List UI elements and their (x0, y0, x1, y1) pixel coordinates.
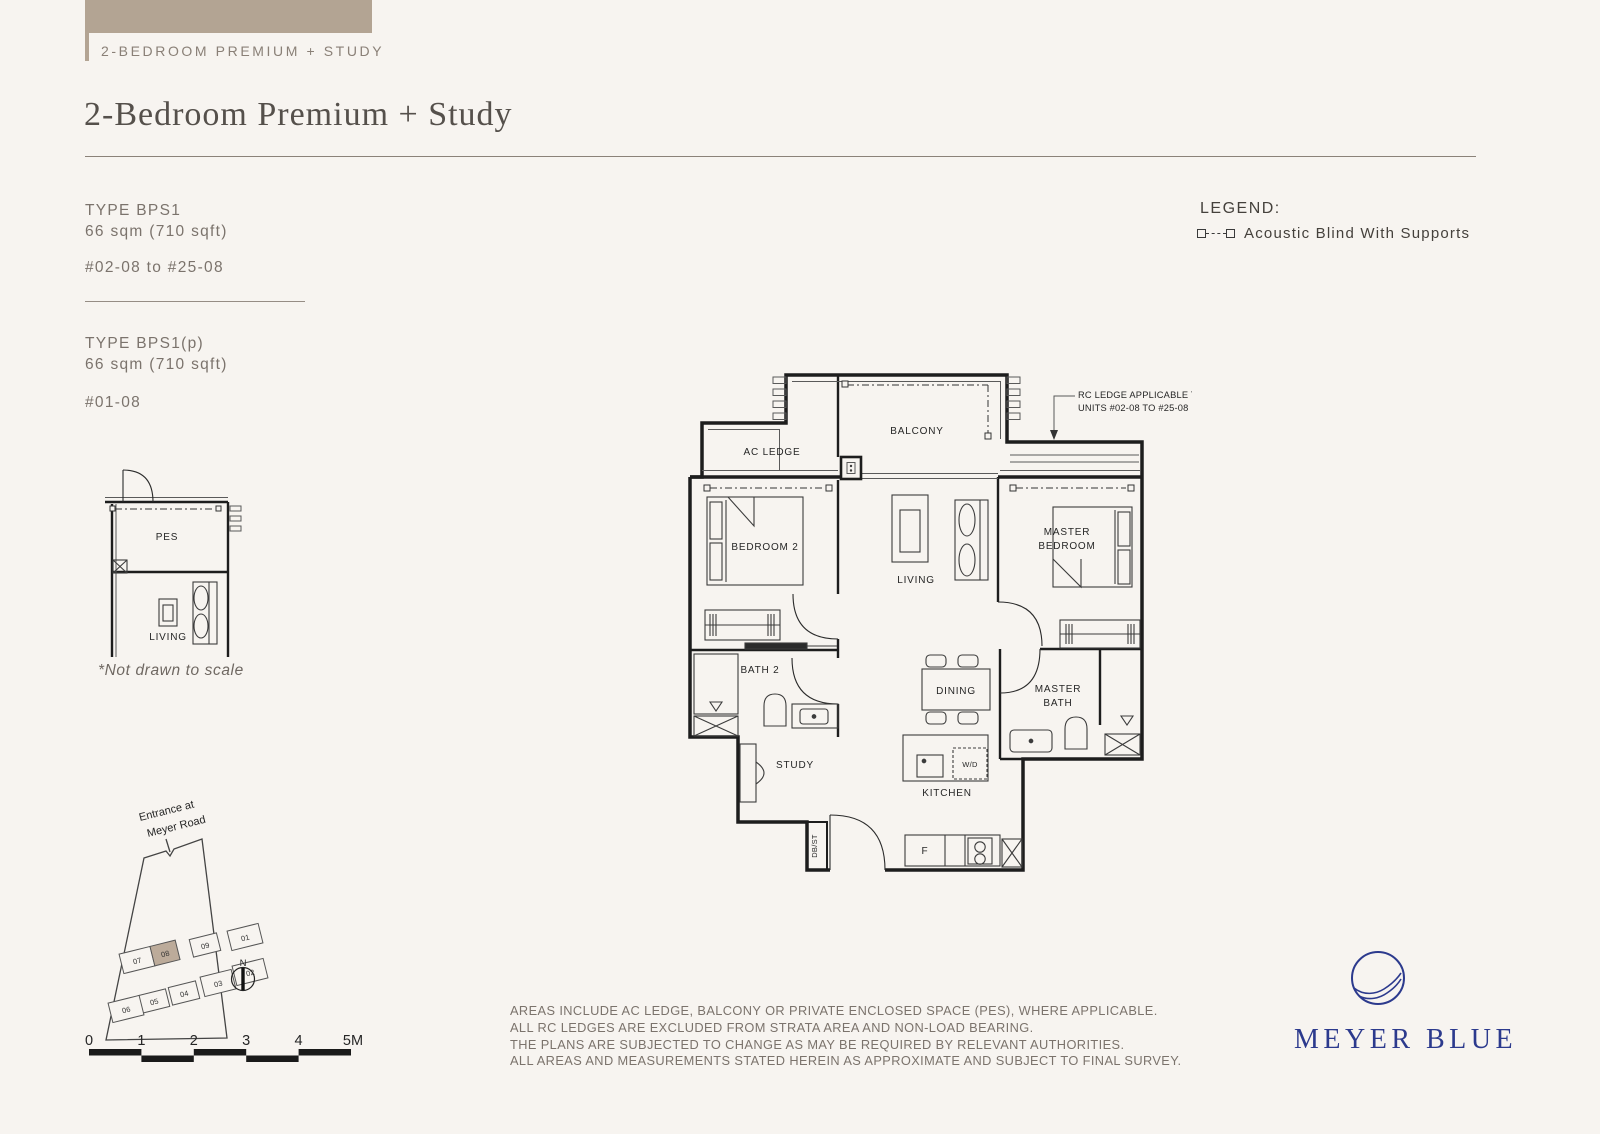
header-tab (85, 0, 372, 33)
accent-bar (85, 33, 89, 61)
doors (792, 594, 1042, 870)
master-bedroom-label-2: BEDROOM (1038, 541, 1095, 552)
scale-bar: 0 1 2 3 4 5M (84, 1032, 384, 1066)
kitchen-label: KITCHEN (922, 788, 972, 799)
disclaimer-line-4: ALL AREAS AND MEASUREMENTS STATED HEREIN… (510, 1053, 1182, 1070)
unit-type-1-name: TYPE BPS1 (85, 200, 228, 221)
scale-1: 1 (137, 1033, 145, 1049)
compass-north-label: N (240, 958, 247, 969)
wd-label: W/D (962, 760, 978, 769)
inset-ledge-marks (230, 506, 241, 531)
disclaimer-line-3: THE PLANS ARE SUBJECTED TO CHANGE AS MAY… (510, 1037, 1182, 1054)
structural-column (841, 457, 861, 479)
legend-item: Acoustic Blind With Supports (1197, 225, 1470, 242)
bedroom2-furniture (705, 497, 837, 649)
title-divider (85, 156, 1476, 157)
rc-ledge-annotation-line1: RC LEDGE APPLICABLE TO (1078, 390, 1192, 400)
site-map: Entrance at Meyer Road 01 02 03 04 05 06… (80, 795, 370, 1050)
disclaimer: AREAS INCLUDE AC LEDGE, BALCONY OR PRIVA… (510, 1003, 1182, 1070)
rc-ledge-annotation-line2: UNITS #02-08 TO #25-08 (1078, 403, 1189, 413)
inset-living-label: LIVING (149, 632, 187, 643)
unit-type-1-units: #02-08 to #25-08 (85, 257, 224, 278)
not-to-scale-note: *Not drawn to scale (98, 662, 244, 680)
living-furniture (892, 495, 988, 580)
unit-type-2: TYPE BPS1(p) 66 sqm (710 sqft) (85, 333, 228, 375)
master-bedroom-label-1: MASTER (1044, 527, 1090, 538)
master-bath-label-1: MASTER (1035, 684, 1081, 695)
scale-5m: 5M (343, 1033, 363, 1049)
study-furniture (740, 744, 764, 802)
unit-type-2-area: 66 sqm (710 sqft) (85, 354, 228, 375)
inset-pes-label: PES (156, 532, 178, 543)
dbst-label: DB/ST (810, 834, 819, 858)
floor-plan: AC LEDGE BALCONY BEDROOM 2 LIVING MASTER… (680, 352, 1192, 878)
meyer-blue-logo-icon (1346, 948, 1410, 1012)
ac-ledge-label: AC LEDGE (744, 447, 801, 458)
acoustic-blind-icon (1197, 229, 1235, 239)
ledge-marks (773, 377, 1020, 420)
living-label: LIVING (897, 575, 935, 586)
scale-3: 3 (242, 1033, 250, 1049)
meyer-blue-logo-text: MEYER BLUE (1294, 1024, 1517, 1056)
dining-label: DINING (936, 686, 976, 697)
master-bath-label-2: BATH (1043, 698, 1072, 709)
scale-0: 0 (85, 1033, 93, 1049)
unit-type-2-units: #01-08 (85, 392, 141, 413)
study-label: STUDY (776, 760, 814, 771)
master-bath-fixtures (1010, 716, 1140, 755)
scale-2: 2 (190, 1033, 198, 1049)
rc-ledge-annotation: RC LEDGE APPLICABLE TO UNITS #02-08 TO #… (1050, 390, 1192, 440)
balcony-label: BALCONY (890, 426, 943, 437)
unit-type-1-area: 66 sqm (710 sqft) (85, 221, 228, 242)
inset-floor-plan: PES LIVING (95, 452, 250, 667)
page-title: 2-Bedroom Premium + Study (84, 96, 513, 134)
bath2-label: BATH 2 (740, 665, 779, 676)
legend-item-label: Acoustic Blind With Supports (1244, 225, 1470, 242)
scale-4: 4 (295, 1033, 303, 1049)
disclaimer-line-2: ALL RC LEDGES ARE EXCLUDED FROM STRATA A… (510, 1020, 1182, 1037)
tab-label: 2-BEDROOM PREMIUM + STUDY (101, 43, 384, 59)
type-divider (85, 301, 305, 302)
disclaimer-line-1: AREAS INCLUDE AC LEDGE, BALCONY OR PRIVA… (510, 1003, 1182, 1020)
unit-type-2-name: TYPE BPS1(p) (85, 333, 228, 354)
bedroom2-label: BEDROOM 2 (731, 542, 798, 553)
legend-title: LEGEND: (1200, 200, 1281, 218)
fridge-label: F (922, 846, 929, 857)
unit-type-1: TYPE BPS1 66 sqm (710 sqft) (85, 200, 228, 242)
